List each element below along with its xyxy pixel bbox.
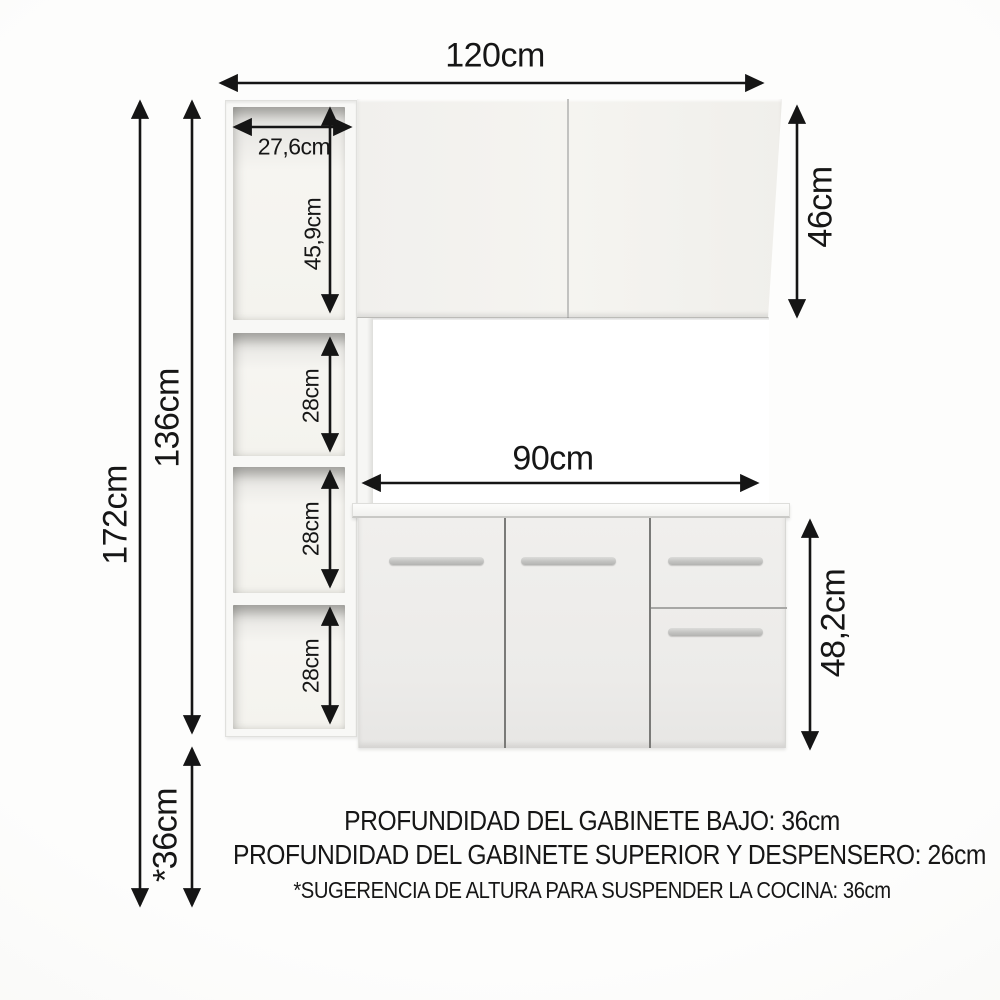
dimension-label-height-upper: 46cm: [802, 166, 841, 247]
dimension-label-height-unit: 136cm: [149, 368, 188, 468]
base-door-divider-2: [649, 518, 651, 748]
dimension-label-section-1: 28cm: [298, 369, 325, 423]
note-depth-upper: PROFUNDIDAD DEL GABINETE SUPERIOR Y DESP…: [233, 838, 951, 872]
depth-notes: PROFUNDIDAD DEL GABINETE BAJO: 36cm PROF…: [184, 804, 1000, 905]
dimension-label-width-total: 120cm: [445, 37, 545, 76]
note-depth-base: PROFUNDIDAD DEL GABINETE BAJO: 36cm: [233, 804, 951, 838]
pantry-shelf-unit: [225, 100, 357, 737]
countertop: [352, 503, 790, 518]
dimension-label-pantry-width: 27,6cm: [258, 134, 330, 161]
note-suspend-height: *SUGERENCIA DE ALTURA PARA SUSPENDER LA …: [233, 875, 951, 905]
pantry-compartment-4: [233, 605, 345, 729]
base-door-2-handle: [521, 557, 616, 565]
dimension-label-height-suspend: *36cm: [147, 788, 186, 882]
base-drawer-handle: [668, 557, 763, 565]
pantry-compartment-3: [233, 467, 345, 593]
dimension-label-height-base: 48,2cm: [815, 569, 854, 678]
dimension-label-pantry-top: 45,9cm: [300, 198, 327, 270]
dimension-label-section-2: 28cm: [298, 502, 325, 556]
kitchen-dimensions-diagram: 120cm 27,6cm 45,9cm 28cm 28cm 28cm 136cm…: [0, 0, 1000, 1000]
side-connector-panel: [357, 318, 373, 508]
upper-cabinet-door-divider: [567, 99, 569, 318]
base-cabinet: [358, 518, 786, 748]
base-drawer-divider: [651, 607, 787, 609]
base-door-3-handle: [668, 628, 763, 636]
dimension-label-section-3: 28cm: [298, 639, 325, 693]
upper-cabinet: [357, 99, 782, 318]
base-door-divider-1: [504, 518, 506, 748]
dimension-label-width-base: 90cm: [512, 440, 593, 479]
base-door-1-handle: [389, 557, 484, 565]
dimension-label-height-total: 172cm: [97, 465, 136, 565]
pantry-compartment-2: [233, 333, 345, 456]
